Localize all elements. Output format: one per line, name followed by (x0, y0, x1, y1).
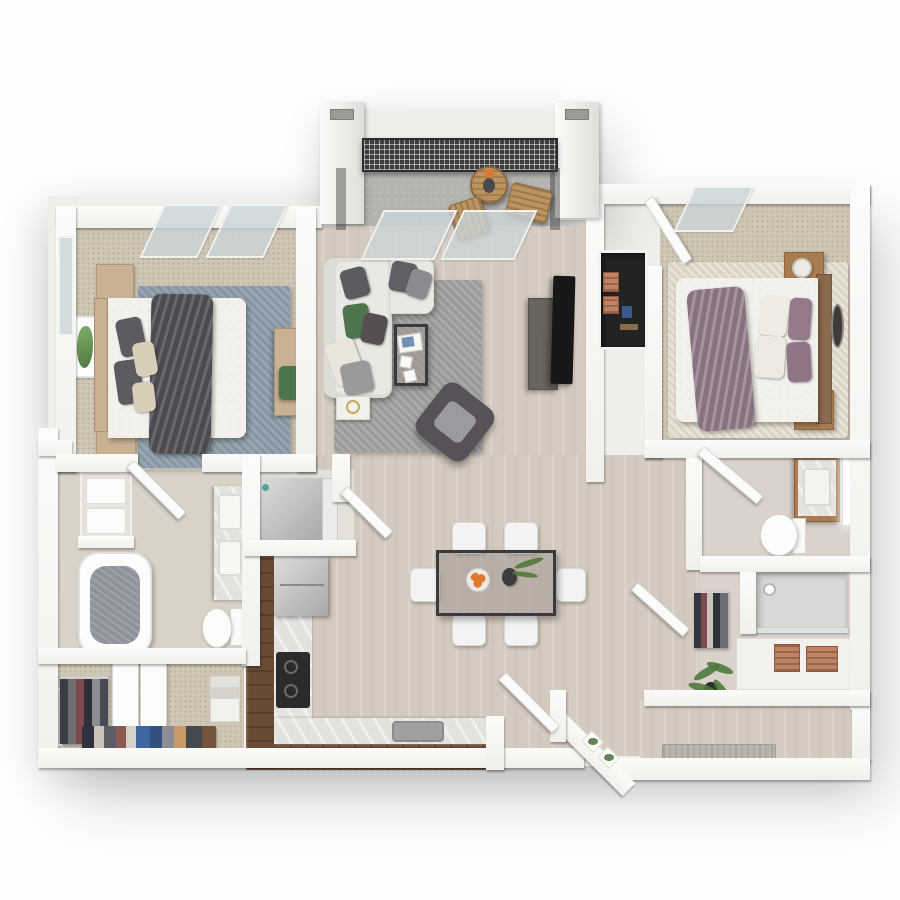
refrigerator (274, 556, 328, 616)
coffee-table-book-cover (401, 336, 414, 348)
balcony-pillar-left-vent (330, 109, 354, 120)
floorplan-canvas (0, 0, 900, 900)
wall-shower-west (740, 572, 756, 634)
refrigerator-handle (280, 584, 324, 586)
side-table-ring (346, 400, 360, 414)
hall-niche-shelf-item (620, 324, 638, 330)
bedroom-2-pillow-mauve-2 (786, 341, 812, 382)
closet-1-shelf-items (82, 726, 216, 750)
bedroom-2-throw-blanket (686, 286, 756, 433)
bathtub-water (90, 566, 140, 644)
sofa-pillow-gray-2 (339, 359, 375, 397)
hall-niche-crate-2 (603, 296, 619, 314)
kitchen-sink (392, 721, 444, 742)
bedroom-1-side-window (58, 236, 74, 336)
bathroom-2-sink (803, 468, 831, 506)
wall-left-lower (38, 428, 58, 758)
closet-1-shoe-rack (210, 676, 240, 722)
wall-kitchen-east (486, 716, 504, 770)
shower-head-icon (763, 583, 776, 596)
balcony-railing (362, 138, 558, 172)
balcony-side-shade-left (336, 168, 346, 230)
bathroom-1-sink-2 (218, 540, 242, 576)
dining-chair-right (556, 568, 586, 602)
towel-stack-1 (86, 478, 126, 504)
tv-screen (551, 276, 576, 385)
wall-bedroom1-bottom-west (56, 454, 138, 472)
closet-2-clothes-rail (694, 590, 728, 648)
shower-glass-panel (756, 628, 848, 633)
bedroom-1-headboard (94, 298, 108, 432)
hall-niche-item-blue (622, 306, 632, 318)
cooktop-burner-2 (284, 684, 298, 698)
wall-bedroom2-bottom (644, 440, 870, 458)
hall-niche-crate-1 (603, 272, 619, 292)
bathroom-2-toilet-bowl (760, 514, 798, 556)
wall-linen-niche-cap (78, 536, 134, 548)
entry-shelf-plant-1 (588, 738, 598, 745)
fruit-bowl-oranges (470, 572, 486, 588)
wall-laundry-bottom (244, 540, 356, 556)
dining-chair-bottom-1 (452, 614, 486, 646)
bedroom-1-throw-blanket (149, 293, 214, 454)
wall-entry-stub (550, 690, 566, 742)
kitchen-counter-south (274, 718, 488, 744)
dining-chair-bottom-2 (504, 614, 538, 646)
bedroom-2-lamp-top (792, 258, 812, 278)
closet-2-crate-2 (806, 646, 838, 672)
cooktop-burner-1 (284, 660, 298, 674)
bedroom-2-wall-mirror (831, 304, 844, 348)
wall-bathroom1-kitchen (242, 454, 260, 666)
bedroom-2-pillow-mauve-1 (788, 297, 813, 340)
patio-table-orange (485, 169, 494, 178)
bathroom-1-toilet-bowl (202, 608, 232, 648)
coffee-table-deco-1 (399, 355, 413, 369)
bedroom-2-pillow-white-1 (757, 294, 790, 338)
balcony-pillar-right-vent (565, 109, 589, 120)
wall-hall-bathroom2 (686, 458, 702, 570)
wall-bathroom1-closet1 (38, 648, 246, 664)
wall-closet2-bottom (644, 690, 870, 706)
washer-control-dot (262, 484, 269, 491)
entry-shelf-plant-2 (604, 754, 614, 761)
wall-bedroom1-living (296, 206, 316, 472)
closet-2-crate-1 (774, 644, 800, 672)
wall-bathroom2-closet2 (700, 556, 870, 572)
bedroom-1-pillow-beige-2 (131, 381, 156, 413)
towel-stack-2 (86, 508, 126, 534)
patio-table-vase (483, 178, 495, 193)
bathroom-1-sink-1 (218, 494, 242, 530)
bedroom-2-pillow-white-2 (754, 335, 787, 379)
wall-right-lower-stub (852, 708, 870, 762)
bedroom-2-headboard (816, 274, 832, 424)
shower-enclosure (756, 572, 848, 632)
wall-bottom-right (612, 758, 870, 780)
